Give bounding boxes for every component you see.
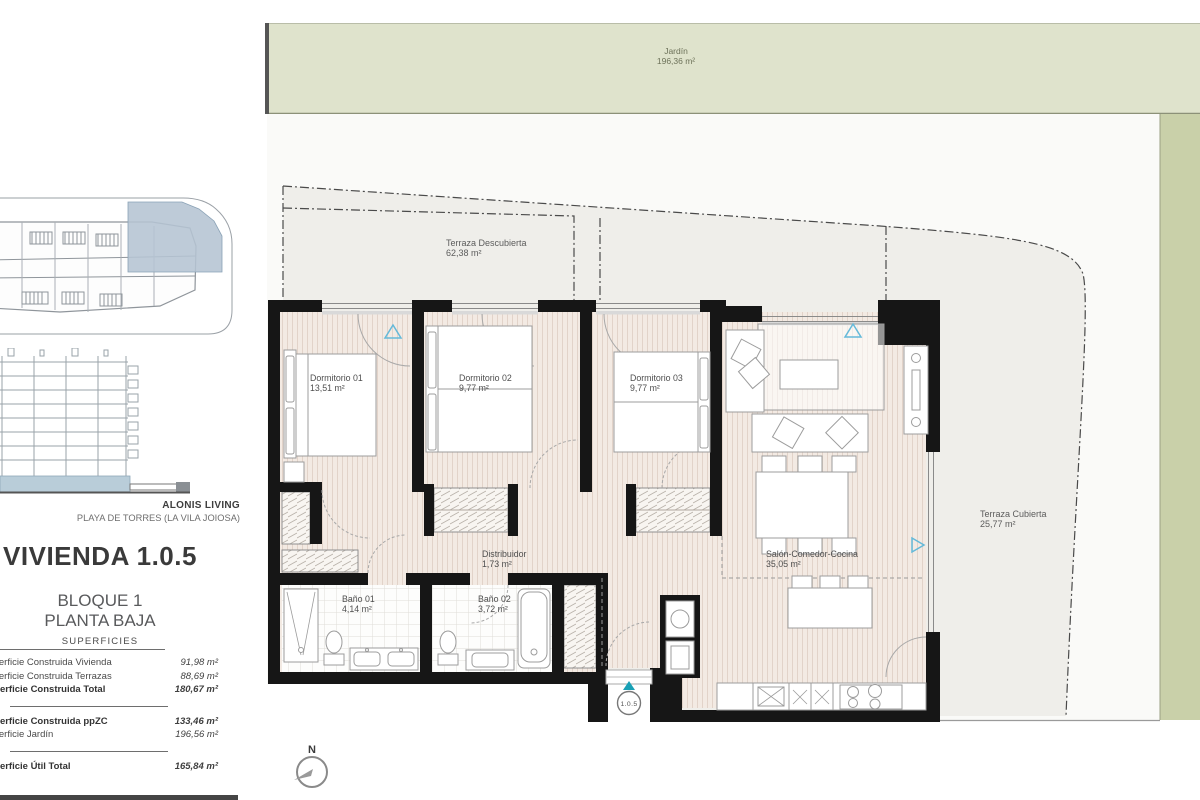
surface-row: Superficie Construida Terrazas 88,69 m²	[0, 670, 218, 684]
dining-set	[756, 456, 856, 554]
block-floor-subtitle: BLOQUE 1 PLANTA BAJA	[0, 591, 206, 631]
kitchen-island	[788, 576, 872, 628]
bath1-label: Baño 01	[342, 594, 375, 604]
bath2-area: 3,72 m²	[478, 604, 508, 614]
dorm2-label: Dormitorio 02	[459, 373, 512, 383]
radiator-panel	[904, 346, 928, 434]
terraza-cubierta-label: Terraza Cubierta	[980, 509, 1047, 519]
terraza-descubierta-area: 62,38 m²	[446, 248, 482, 258]
block-label: BLOQUE 1	[0, 591, 206, 611]
brand-location: PLAYA DE TORRES (LA VILA JOIOSA)	[0, 512, 240, 524]
garden-label: Jardín	[664, 46, 688, 56]
terraza-descubierta-label: Terraza Descubierta	[446, 238, 527, 248]
surface-row-total: Superficie Construida Total 180,67 m²	[0, 683, 218, 697]
floor-label: PLANTA BAJA	[0, 611, 206, 631]
surface-row-ppzc: Superficie Construida ppZC 133,46 m²	[0, 715, 218, 729]
dorm3-area: 9,77 m²	[630, 383, 660, 393]
bed-dorm3	[614, 352, 710, 452]
surface-row: Superficie Construida Vivienda 91,98 m²	[0, 656, 218, 670]
garden-side-band	[1160, 114, 1200, 720]
page-bottom-sliver	[0, 795, 238, 800]
table-divider	[10, 751, 168, 752]
dorm3-label: Dormitorio 03	[630, 373, 683, 383]
building-elevation-thumbnail	[0, 348, 225, 498]
floorplan-page: { "sidebar": { "brand": "ALONIS LIVING",…	[0, 0, 1200, 800]
salon-label: Salón-Comedor-Cocina	[766, 549, 858, 559]
distribuidor-label: Distribuidor	[482, 549, 527, 559]
compass: N	[294, 744, 327, 787]
brand-name: ALONIS LIVING	[0, 500, 240, 512]
kitchen-counter	[717, 683, 926, 710]
surface-row-util: Superficie Útil Total 165,84 m²	[0, 760, 218, 774]
table-divider	[10, 706, 168, 707]
terraza-cubierta-area: 25,77 m²	[980, 519, 1016, 529]
surfaces-heading: SUPERFICIES	[0, 636, 206, 647]
surfaces-table: Superficie Construida Vivienda 91,98 m² …	[0, 656, 218, 773]
garden-area-value: 196,36 m²	[657, 56, 695, 66]
surface-row: Superficie Jardín 196,56 m²	[0, 728, 218, 742]
project-brand: ALONIS LIVING PLAYA DE TORRES (LA VILA J…	[0, 500, 240, 524]
page-title: VIVIENDA 1.0.5	[0, 541, 206, 572]
unit-marker-label: 1.0.5	[620, 701, 637, 708]
dorm1-label: Dormitorio 01	[310, 373, 363, 383]
dorm2-area: 9,77 m²	[459, 383, 489, 393]
compass-north-label: N	[308, 744, 316, 756]
unit-highlight	[128, 202, 222, 272]
distribuidor-area: 1,73 m²	[482, 559, 512, 569]
info-sidebar: ALONIS LIVING PLAYA DE TORRES (LA VILA J…	[0, 0, 248, 800]
surfaces-heading-rule	[0, 649, 165, 650]
garden-area: Jardín 196,36 m²	[265, 23, 1200, 114]
bath1-area: 4,14 m²	[342, 604, 372, 614]
bath2-label: Baño 02	[478, 594, 511, 604]
apartment: Dormitorio 01 13,51 m² Dormitorio 02 9,7…	[268, 300, 940, 722]
appliance-column	[666, 601, 694, 674]
salon-area: 35,05 m²	[766, 559, 801, 569]
dorm1-area: 13,51 m²	[310, 383, 345, 393]
site-plan-thumbnail	[0, 194, 238, 344]
